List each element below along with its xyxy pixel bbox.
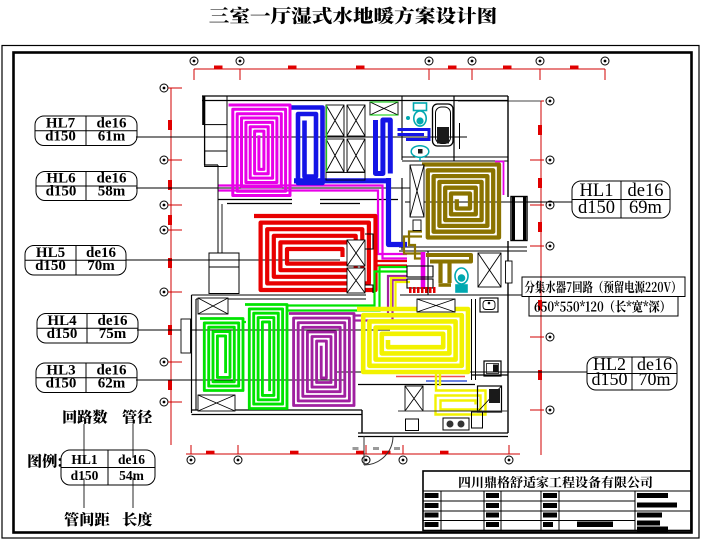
svg-text:d150: d150 [71, 468, 99, 483]
svg-text:69m: 69m [629, 198, 663, 218]
svg-text:HL1: HL1 [71, 452, 98, 467]
svg-text:75m: 75m [99, 326, 127, 342]
svg-text:d150: d150 [35, 258, 66, 274]
svg-text:70m: 70m [638, 369, 670, 389]
svg-text:58m: 58m [98, 184, 126, 200]
svg-text:d150: d150 [46, 376, 77, 392]
svg-text:61m: 61m [98, 129, 126, 145]
svg-text:d150: d150 [592, 369, 628, 389]
svg-text:d150: d150 [45, 129, 76, 145]
svg-text:54m: 54m [119, 468, 145, 483]
svg-text:d150: d150 [578, 198, 615, 218]
svg-text:62m: 62m [98, 376, 126, 392]
svg-text:d150: d150 [47, 326, 78, 342]
svg-text:d150: d150 [46, 184, 77, 200]
svg-text:70m: 70m [87, 258, 115, 274]
svg-text:de16: de16 [118, 452, 145, 467]
